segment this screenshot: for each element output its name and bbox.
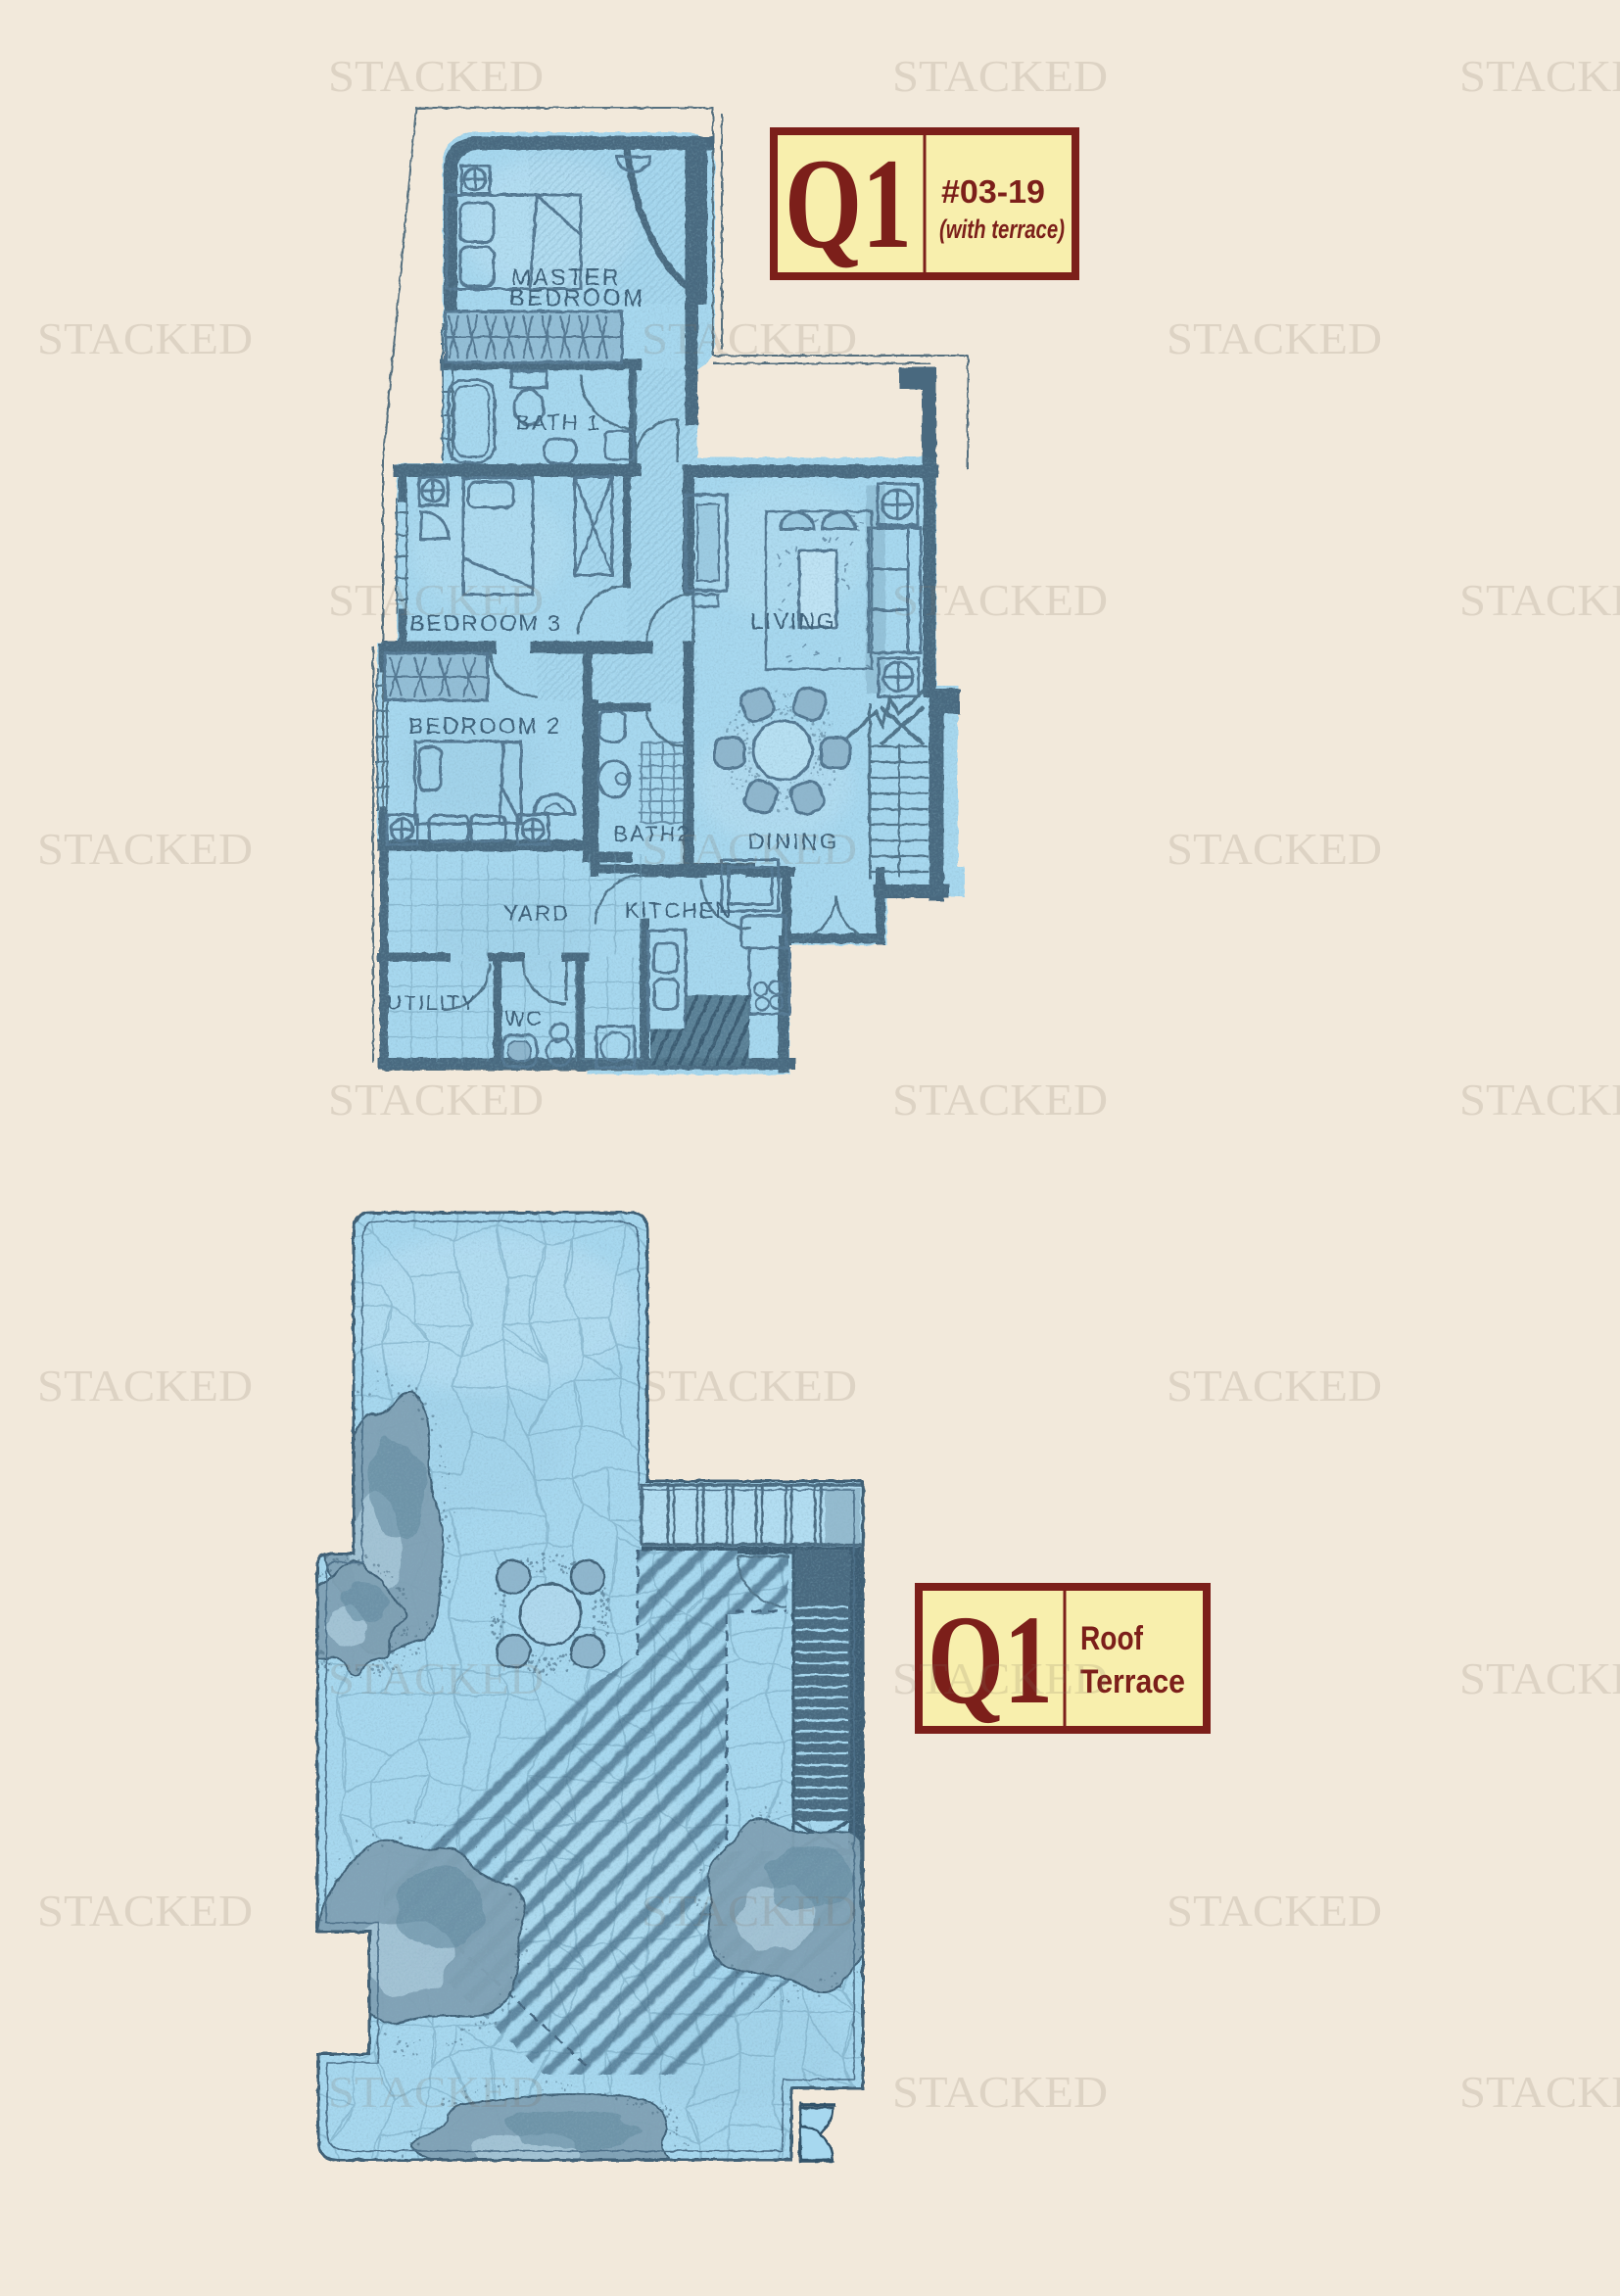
svg-text:STACKED: STACKED: [37, 1361, 253, 1411]
svg-text:STACKED: STACKED: [892, 2067, 1108, 2117]
svg-text:BATH 1: BATH 1: [515, 410, 600, 435]
svg-text:STACKED: STACKED: [1459, 1075, 1620, 1124]
svg-text:WC: WC: [505, 1008, 544, 1030]
svg-text:UTILITY: UTILITY: [387, 992, 477, 1015]
svg-text:KITCHEN: KITCHEN: [625, 898, 734, 923]
svg-text:STACKED: STACKED: [1167, 1886, 1382, 1936]
svg-text:STACKED: STACKED: [1167, 313, 1382, 363]
svg-text:STACKED: STACKED: [892, 1653, 1108, 1703]
svg-text:STACKED: STACKED: [328, 1075, 544, 1124]
svg-text:YARD: YARD: [503, 901, 570, 926]
svg-text:STACKED: STACKED: [328, 1653, 544, 1703]
svg-text:STACKED: STACKED: [642, 313, 857, 363]
svg-text:BEDROOM 2: BEDROOM 2: [408, 713, 561, 739]
svg-text:#03-19: #03-19: [941, 173, 1045, 210]
svg-text:STACKED: STACKED: [892, 575, 1108, 625]
svg-text:BEDROOM: BEDROOM: [509, 285, 644, 311]
svg-text:Q1: Q1: [785, 131, 912, 275]
svg-text:STACKED: STACKED: [642, 824, 857, 874]
svg-text:STACKED: STACKED: [892, 1075, 1108, 1124]
svg-text:STACKED: STACKED: [892, 51, 1108, 101]
svg-text:STACKED: STACKED: [1167, 1361, 1382, 1411]
svg-text:STACKED: STACKED: [1459, 575, 1620, 625]
svg-text:STACKED: STACKED: [328, 2067, 544, 2117]
svg-text:STACKED: STACKED: [1459, 2067, 1620, 2117]
svg-text:(with terrace): (with terrace): [939, 215, 1065, 244]
svg-text:STACKED: STACKED: [37, 1886, 253, 1936]
svg-text:STACKED: STACKED: [37, 313, 253, 363]
svg-text:STACKED: STACKED: [328, 51, 544, 101]
svg-text:STACKED: STACKED: [1459, 51, 1620, 101]
svg-text:STACKED: STACKED: [642, 1361, 857, 1411]
svg-text:Roof: Roof: [1080, 1620, 1144, 1657]
svg-text:STACKED: STACKED: [37, 824, 253, 874]
svg-text:STACKED: STACKED: [1167, 824, 1382, 874]
svg-text:LIVING: LIVING: [750, 608, 835, 634]
svg-text:STACKED: STACKED: [328, 575, 544, 625]
svg-text:STACKED: STACKED: [1459, 1653, 1620, 1703]
svg-text:STACKED: STACKED: [642, 1886, 857, 1936]
